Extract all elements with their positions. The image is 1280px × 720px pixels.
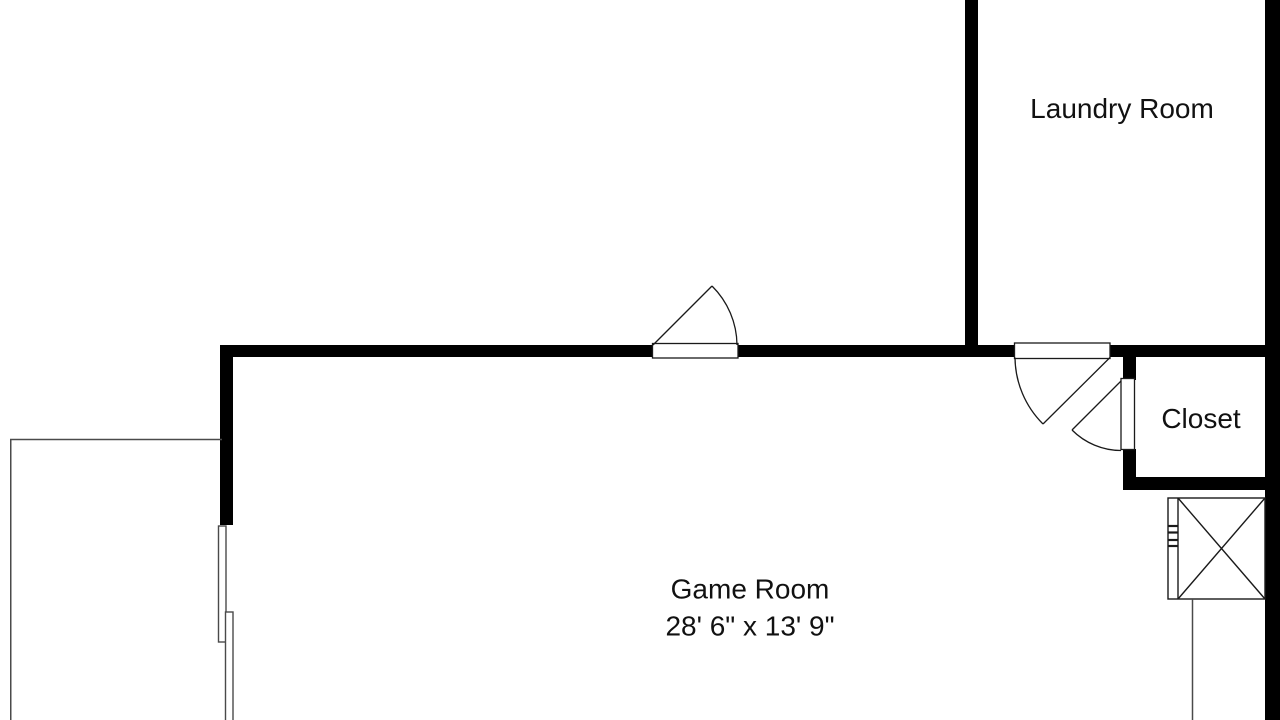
game-room-label-group: Game Room 28' 6" x 13' 9" <box>665 574 834 643</box>
sliding-door-panel-inner <box>226 612 234 720</box>
door3-panel <box>1121 379 1135 450</box>
door-main-wall-west <box>653 286 739 358</box>
patio-edge-line <box>11 440 222 720</box>
door-closet <box>1072 379 1135 451</box>
closet-label: Closet <box>1161 403 1240 435</box>
main-wall-east-segment <box>1110 345 1280 357</box>
closet-west-wall-upper <box>1123 357 1136 380</box>
door-main-wall-east <box>1015 343 1111 424</box>
laundry-room-label: Laundry Room <box>1030 93 1214 125</box>
door1-swing-arc <box>712 286 737 345</box>
door2-swing-arc <box>1015 358 1043 425</box>
door3-swing-arc <box>1072 430 1121 451</box>
door2-threshold <box>1015 343 1111 359</box>
sliding-glass-door <box>219 526 234 720</box>
xbox-outline <box>1168 498 1265 599</box>
laundry-west-wall <box>965 0 978 357</box>
door2-leaf <box>1043 358 1110 425</box>
gameroom-west-wall <box>220 345 233 525</box>
door1-threshold <box>653 344 739 359</box>
game-room-name: Game Room <box>665 574 834 606</box>
main-wall-west-segment <box>222 345 653 357</box>
utility-xbox-symbol <box>1168 498 1265 599</box>
patio-outline <box>11 440 222 720</box>
door1-leaf <box>653 286 712 345</box>
game-room-dimensions: 28' 6" x 13' 9" <box>665 611 834 643</box>
east-exterior-wall <box>1265 0 1280 720</box>
closet-south-wall <box>1123 477 1280 490</box>
floorplan-canvas: Laundry Room Closet Game Room 28' 6" x 1… <box>0 0 1280 720</box>
